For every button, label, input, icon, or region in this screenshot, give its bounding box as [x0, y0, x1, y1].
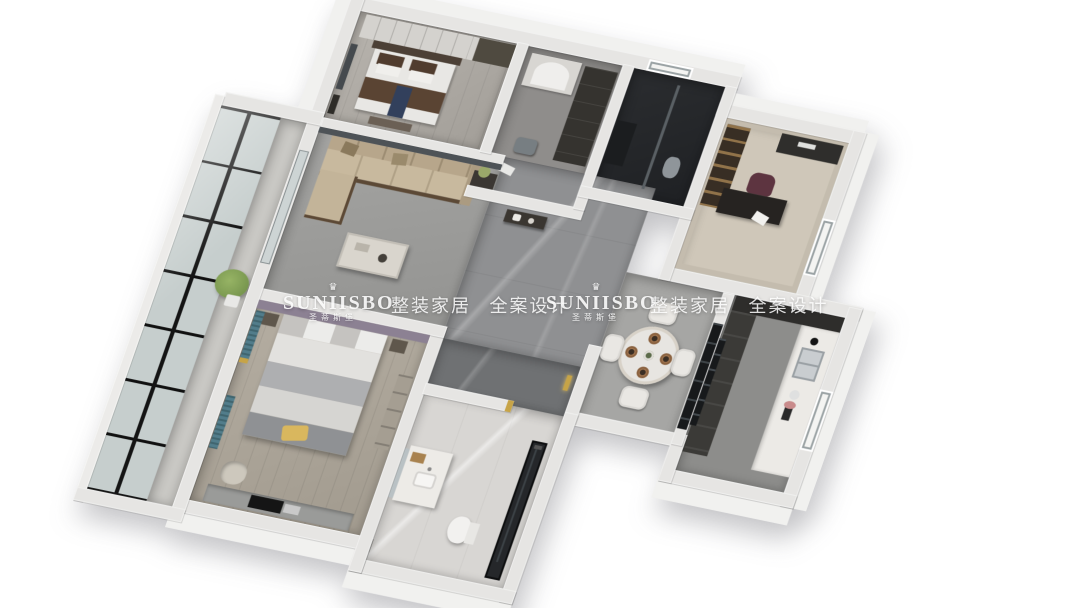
place-setting [624, 345, 639, 359]
place-setting [635, 366, 650, 380]
table-decor [377, 253, 389, 263]
centerpiece [642, 350, 655, 361]
watermark-brand: SUNIISBO [283, 293, 383, 313]
sink [791, 347, 825, 382]
watermark-logo: ♛ SUNIISBO 圣蒂斯堡 [546, 283, 646, 322]
audio-device [247, 495, 284, 514]
vanity-faucet [427, 467, 432, 472]
watermark-brand-cn: 圣蒂斯堡 [546, 313, 646, 322]
cabinet-decor [797, 142, 816, 150]
place-setting [647, 332, 662, 346]
basin [411, 471, 437, 490]
watermark-brand-cn: 圣蒂斯堡 [283, 313, 383, 322]
watermark-brand: SUNIISBO [546, 293, 646, 313]
sofa-pillow [391, 153, 408, 166]
dish [788, 389, 801, 400]
console-decor [527, 218, 535, 225]
watermark-logo: ♛ SUNIISBO 圣蒂斯堡 [283, 283, 383, 322]
sink-divider [796, 361, 820, 368]
faucet [809, 337, 819, 346]
flower-bottle [781, 406, 793, 421]
watermark-tagline: 整装家居 全案设计 [391, 292, 570, 318]
console-decor [512, 213, 522, 221]
wood-tray [410, 452, 427, 464]
audio-device-silver [283, 504, 301, 516]
watermark-tagline: 整装家居 全案设计 [650, 292, 829, 318]
yellow-pillow [281, 425, 309, 440]
flowers [783, 400, 797, 410]
floorplan-render: ♛ SUNIISBO 圣蒂斯堡 整装家居 全案设计 ♛ SUNIISBO 圣蒂斯… [0, 0, 1080, 608]
table-decor [354, 242, 370, 252]
arch-niche [530, 59, 573, 91]
